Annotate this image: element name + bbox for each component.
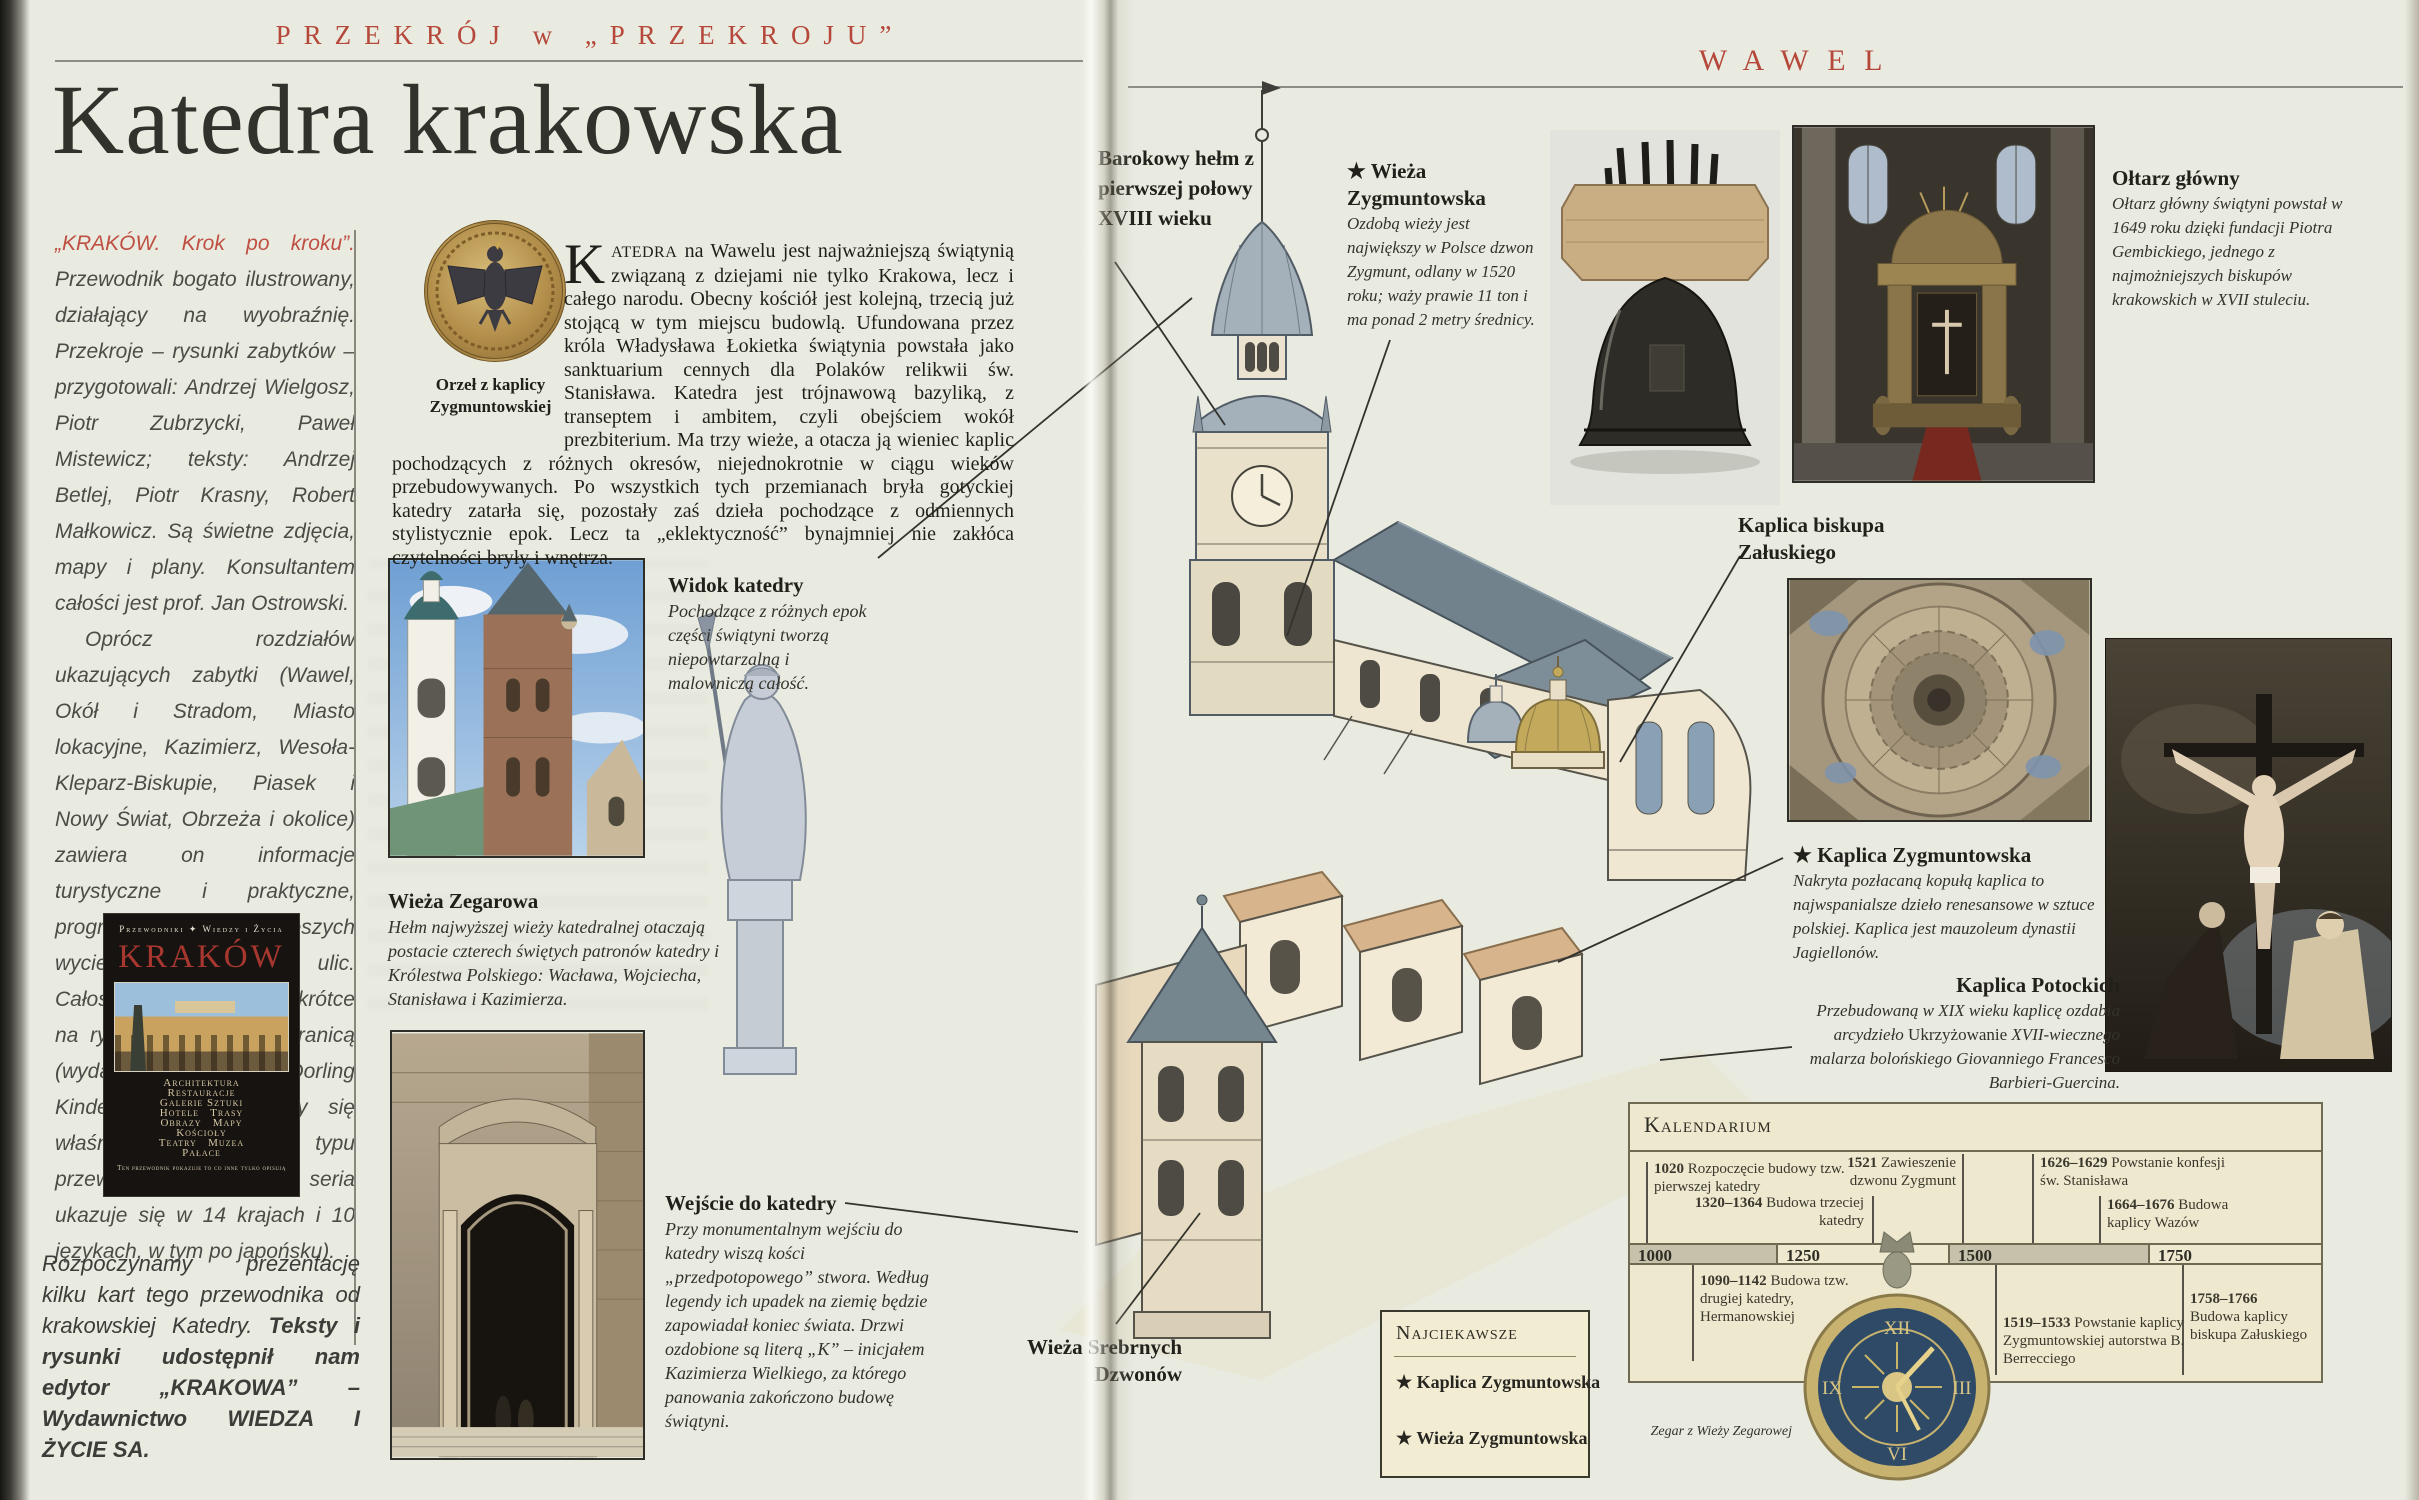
timeline-event: 1664–1676 Budowa kaplicy Wazów — [2107, 1196, 2247, 1232]
page-title: Katedra krakowska — [52, 70, 844, 170]
oltarz-glowny-caption: Ołtarz główny Ołtarz główny świątyni pow… — [2112, 165, 2362, 312]
kalendarium-title: Kalendarium — [1644, 1112, 1772, 1138]
right-page-kicker: WAWEL — [1450, 44, 2150, 78]
wieza-zygmuntowska-caption: ★ Wieża Zygmuntowska Ozdobą wieży jest n… — [1347, 158, 1545, 332]
main-altar-photo — [1792, 125, 2095, 483]
najciekawsze-box: Najciekawsze ★ Kaplica Zygmuntowska ★ Wi… — [1380, 1310, 1590, 1478]
cover-tagline: Ten przewodnik pokazuje to co inne tylko… — [104, 1163, 299, 1172]
wejscie-caption: Wejście do katedry Przy monumentalnym we… — [665, 1190, 955, 1433]
sidebar-para1: Przewodnik bogato ilustrowany, działając… — [55, 268, 355, 615]
widok-caption: Widok katedry Pochodzące z różnych epok … — [668, 572, 873, 695]
cathedral-towers-photo — [388, 558, 645, 858]
drop-cap: K — [564, 240, 611, 288]
kaplica-zygmuntowska-caption: ★ Kaplica Zygmuntowska Nakryta pozłacaną… — [1793, 842, 2123, 965]
najciekawsze-item: ★ Kaplica Zygmuntowska — [1396, 1370, 1602, 1394]
chapel-dome-photo — [1787, 578, 2092, 822]
crucifixion-painting — [2105, 638, 2392, 1072]
timeline-event: 1521 Zawieszenie dzwonu Zygmunt — [1826, 1154, 1956, 1190]
svg-text:XII: XII — [1884, 1318, 1910, 1339]
intro-paragraph: KATEDRA na Wawelu jest najważniejszą świ… — [392, 240, 1014, 570]
kaplica-potockich-caption: Kaplica Potockich Przebudowaną w XIX wie… — [1790, 972, 2120, 1095]
tower-clock-photo: XII III VI IX — [1800, 1222, 1995, 1482]
cover-categories: Architektura Restauracje Galerie Sztuki … — [104, 1078, 299, 1158]
left-page-kicker: PRZEKRÓJ w „PRZEKROJU” — [150, 20, 1030, 51]
cathedral-entrance-photo — [390, 1030, 645, 1460]
zegar-caption: Zegar z Wieży Zegarowej — [1620, 1424, 1792, 1440]
page-fold — [1082, 0, 1134, 1500]
star-icon: ★ — [1793, 843, 1812, 867]
publisher-logo-icon: ✦ — [189, 924, 199, 934]
magazine-spread: PRZEKRÓJ w „PRZEKROJU” Katedra krakowska… — [0, 0, 2419, 1500]
zygmunt-bell-photo — [1550, 130, 1780, 505]
cover-title: KRAKÓW — [104, 941, 299, 974]
timeline-event: 1519–1533 Powstanie kaplicy Zygmuntowski… — [2003, 1314, 2203, 1368]
star-icon: ★ — [1396, 1372, 1412, 1392]
timeline-event: 1758–1766 Budowa kaplicy biskupa Załuski… — [2190, 1290, 2310, 1344]
svg-text:IX: IX — [1822, 1378, 1842, 1399]
sidebar-footer: Rozpoczynamy prezentację kilku kart tego… — [42, 1248, 360, 1465]
timeline-event: 1626–1629 Powstanie konfesji św. Stanisł… — [2040, 1154, 2230, 1190]
right-header-rule — [1128, 86, 2403, 88]
star-icon: ★ — [1396, 1428, 1412, 1448]
scan-edge-right — [2405, 0, 2419, 1500]
star-icon: ★ — [1347, 159, 1366, 183]
najciekawsze-title: Najciekawsze — [1396, 1322, 1518, 1345]
cover-brand: Przewodniki ✦ Wiedzy i Życia — [104, 924, 299, 935]
left-header-rule — [55, 60, 1083, 62]
book-cover: Przewodniki ✦ Wiedzy i Życia KRAKÓW Arch… — [103, 913, 300, 1197]
kaplica-zaluskiego-label: Kaplica biskupa Załuskiego — [1738, 512, 1923, 566]
sidebar-lead: „KRAKÓW. Krok po kroku”. — [55, 232, 355, 255]
cover-photo — [114, 982, 289, 1072]
svg-text:III: III — [1953, 1378, 1972, 1399]
column-divider — [354, 230, 356, 1345]
wieza-zegarowa-caption: Wieża Zegarowa Hełm najwyższej wieży kat… — [388, 888, 723, 1011]
svg-text:VI: VI — [1887, 1444, 1907, 1465]
scan-edge-left — [0, 0, 30, 1500]
najciekawsze-item: ★ Wieża Zygmuntowska — [1396, 1426, 1602, 1450]
